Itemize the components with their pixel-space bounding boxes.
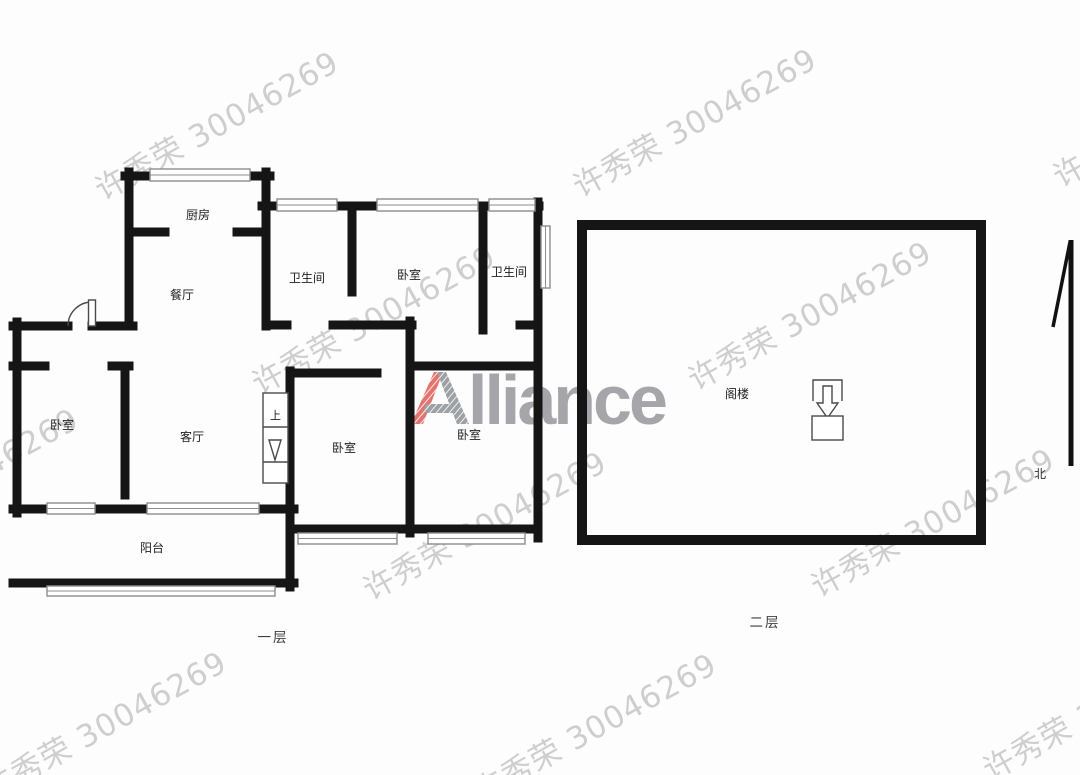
room-label-bathroom-1: 卫生间	[289, 271, 325, 285]
floor1-staircase: 上	[263, 393, 288, 483]
room-label-balcony: 阳台	[140, 540, 164, 555]
room-label-dining: 餐厅	[170, 287, 194, 302]
logo-text: lliance	[468, 361, 666, 439]
entry-door-leaf	[89, 300, 96, 326]
stairwell-down-arrow	[817, 386, 838, 418]
watermark-text: 许秀荣 30046269	[977, 624, 1080, 775]
room-label-living-room: 客厅	[180, 429, 204, 444]
staircase-up-label: 上	[270, 409, 281, 422]
room-label-bedroom-left: 卧室	[50, 417, 74, 432]
room-label-kitchen: 厨房	[186, 207, 210, 222]
floor2-caption: 二层	[750, 615, 781, 631]
room-label-bedroom-right: 卧室	[457, 427, 481, 442]
logo-letter-a-crossbar	[423, 404, 461, 413]
watermark-text: 许秀荣 30046269	[1047, 31, 1080, 195]
staircase-outline	[263, 393, 288, 483]
watermark-text: 许秀荣 30046269	[567, 41, 823, 205]
floorplan-image: 许秀荣 30046269 许秀荣 30046269 许秀荣 30046269 许…	[0, 0, 1080, 775]
logo-letter-a-right-stroke	[437, 372, 469, 424]
watermark-text: 许秀荣 30046269	[805, 441, 1061, 605]
watermark-text: 许秀荣 30046269	[0, 644, 233, 775]
room-label-attic: 阁楼	[725, 386, 749, 401]
floor1-caption: 一层	[258, 630, 289, 646]
room-label-bathroom-2: 卫生间	[491, 265, 527, 279]
logo-letter-a-left-stroke	[411, 372, 443, 424]
watermark-text: 许秀荣 30046269	[246, 238, 502, 402]
watermark-text: 许秀荣 30046269	[467, 646, 723, 775]
watermark-text: 许秀荣 30046269	[682, 234, 938, 398]
room-label-bedroom-top: 卧室	[397, 267, 421, 282]
stairwell-box	[812, 416, 843, 440]
floor2-staircase	[812, 380, 843, 440]
room-label-bedroom-middle: 卧室	[332, 440, 356, 455]
north-arrow-head	[1053, 242, 1070, 327]
north-label: 北	[1034, 467, 1046, 481]
